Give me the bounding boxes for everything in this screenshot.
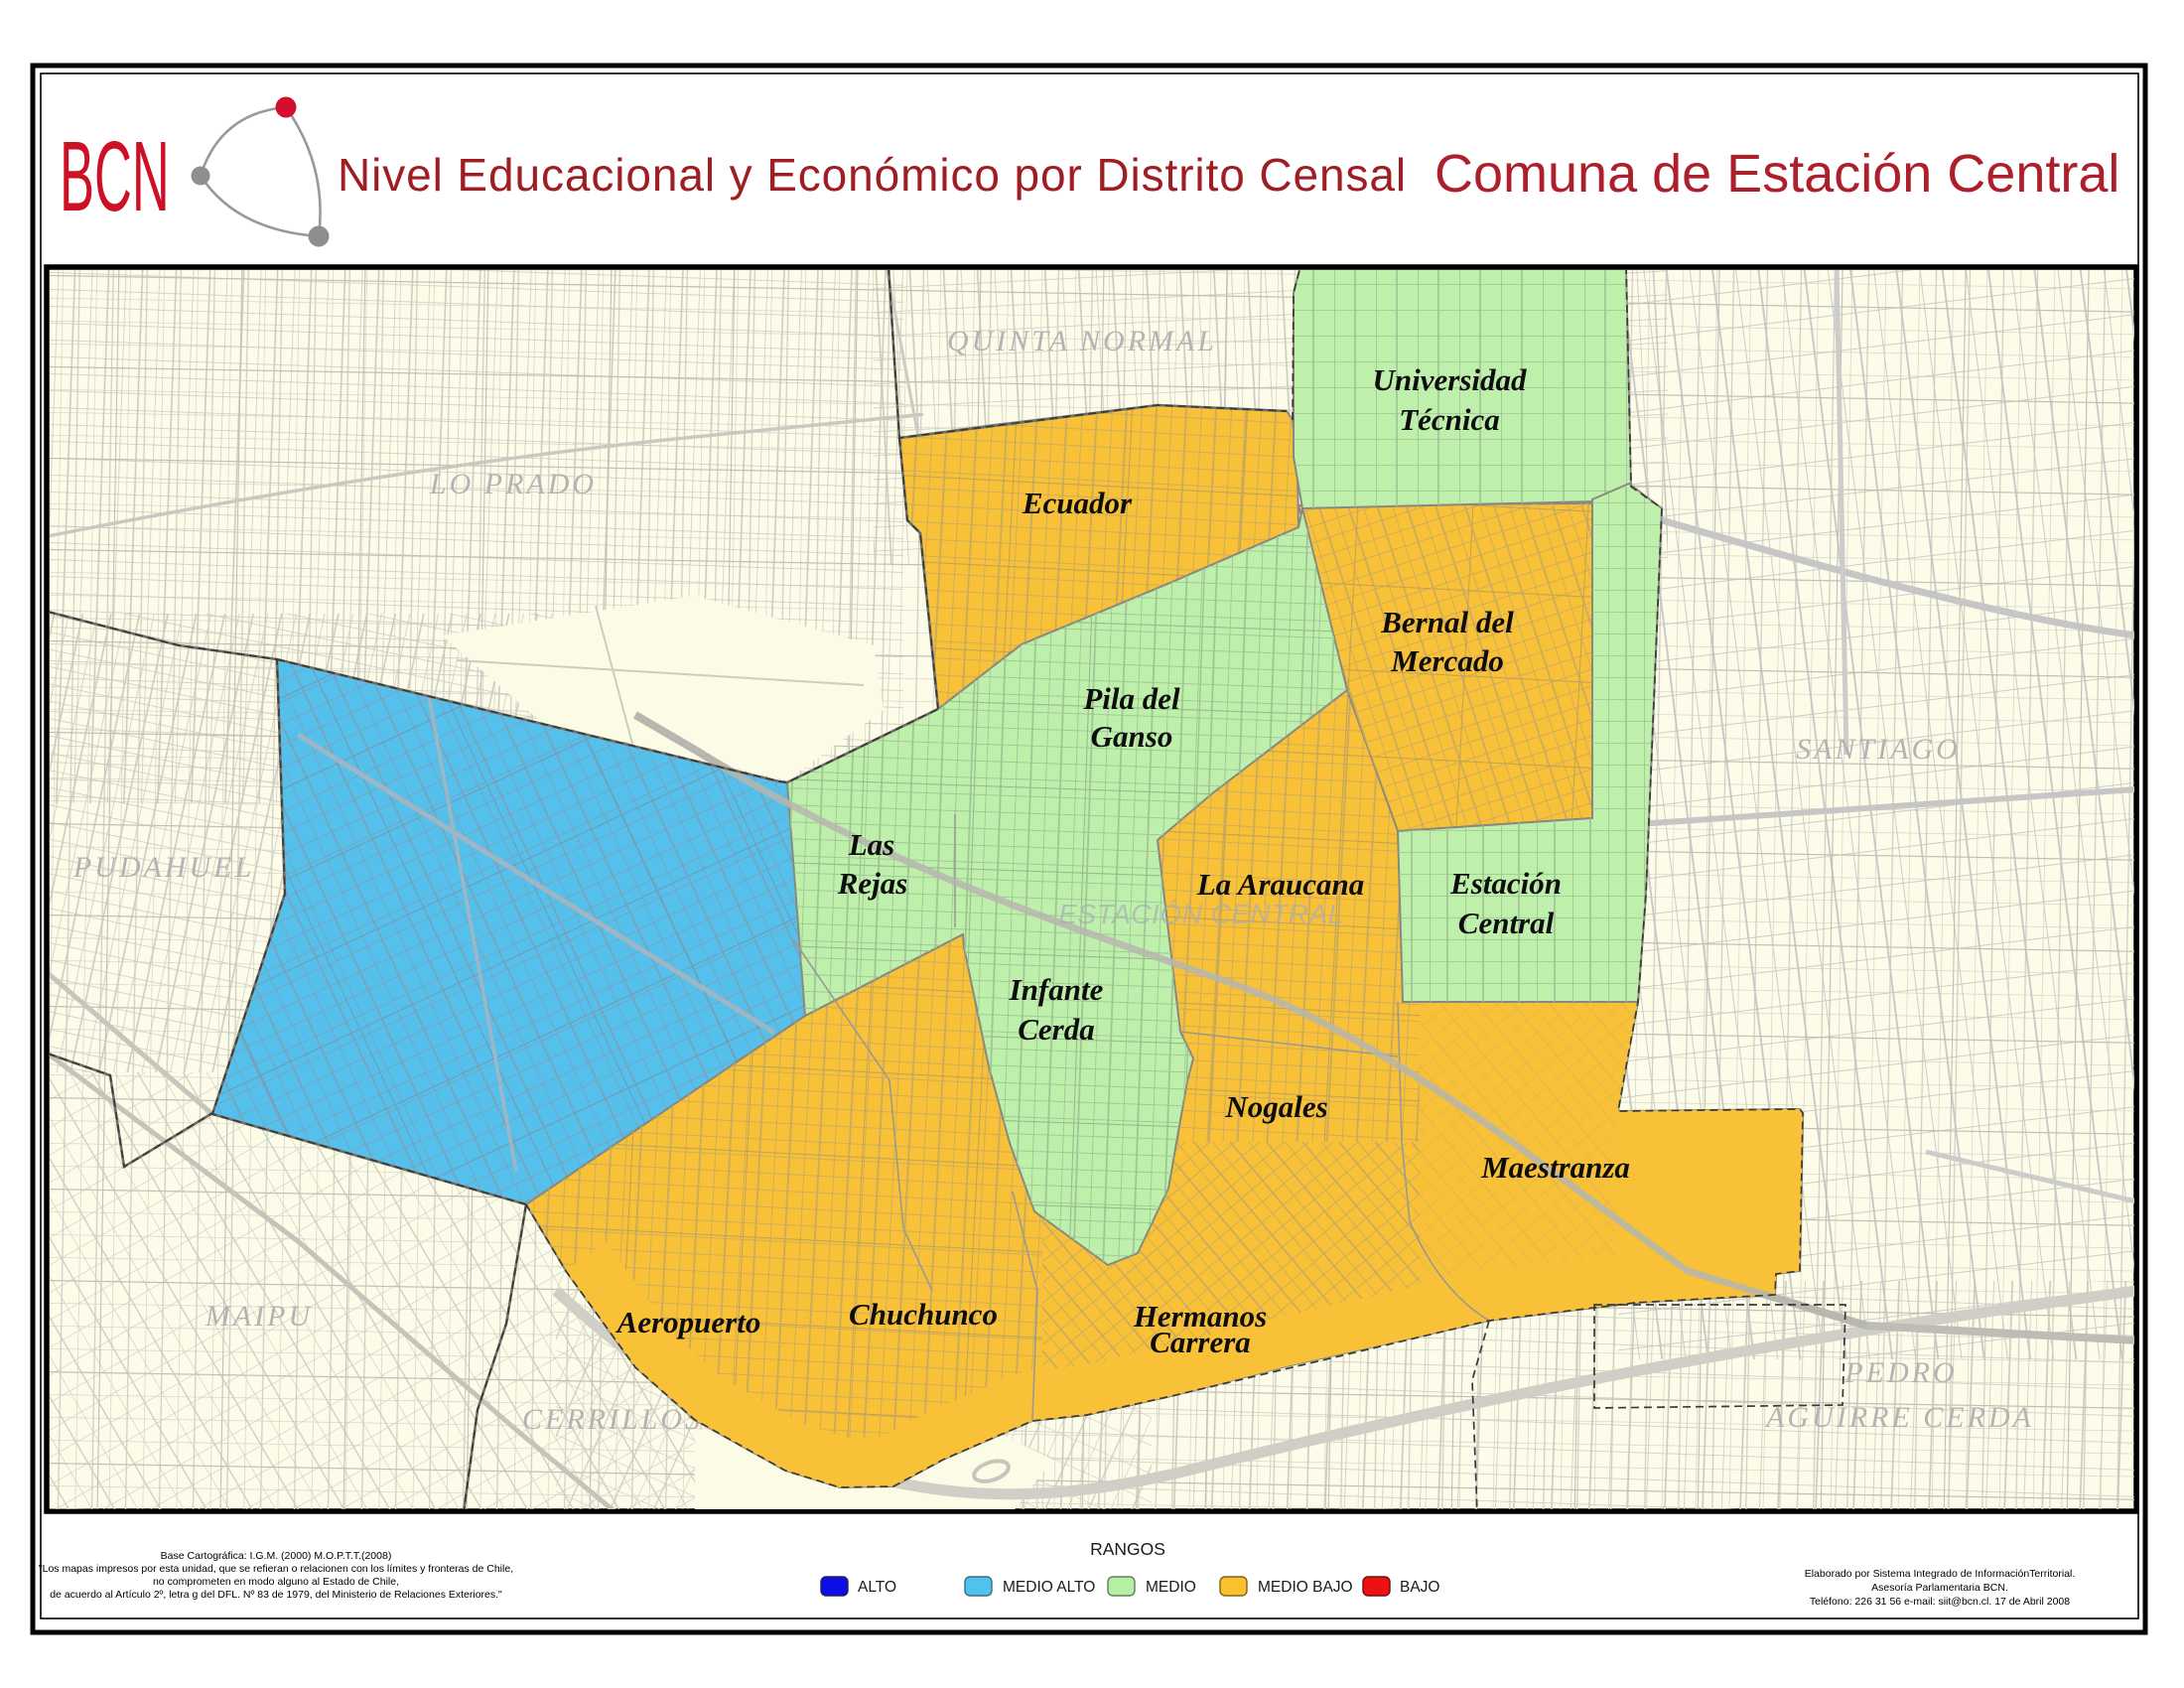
svg-text:LO PRADO: LO PRADO <box>429 468 597 500</box>
svg-text:QUINTA NORMAL: QUINTA NORMAL <box>947 325 1217 357</box>
svg-text:Elaborado por Sistema Integrad: Elaborado por Sistema Integrado de Infor… <box>1805 1568 2076 1580</box>
svg-text:Teléfono: 226 31 56 e-mail: si: Teléfono: 226 31 56 e-mail: siit@bcn.cl.… <box>1810 1596 2070 1608</box>
svg-text:ALTO: ALTO <box>858 1579 896 1596</box>
svg-text:Universidad: Universidad <box>1373 362 1528 397</box>
svg-text:Bernal del: Bernal del <box>1380 605 1514 639</box>
svg-text:Cerda: Cerda <box>1018 1012 1095 1047</box>
svg-text:Ganso: Ganso <box>1091 719 1173 754</box>
svg-text:Asesoría Parlamentaria BCN.: Asesoría Parlamentaria BCN. <box>1871 1582 2008 1594</box>
svg-text:MEDIO: MEDIO <box>1146 1579 1196 1596</box>
svg-text:Rejas: Rejas <box>837 866 908 901</box>
svg-text:Comuna de Estación Central: Comuna de Estación Central <box>1434 144 2119 204</box>
svg-text:Ecuador: Ecuador <box>1022 486 1133 520</box>
svg-text:"Los mapas impresos por esta u: "Los mapas impresos por esta unidad, que… <box>39 1563 513 1575</box>
svg-text:MAIPU: MAIPU <box>205 1300 313 1333</box>
svg-text:Maestranza: Maestranza <box>1480 1150 1630 1185</box>
svg-text:de acuerdo al Artículo 2º, let: de acuerdo al Artículo 2º, letra g del D… <box>50 1589 502 1601</box>
svg-text:BAJO: BAJO <box>1400 1579 1439 1596</box>
svg-text:Nivel Educacional y Económico: Nivel Educacional y Económico por Distri… <box>338 149 1407 201</box>
svg-text:SANTIAGO: SANTIAGO <box>1796 733 1961 766</box>
svg-text:no comprometen en modo alguno: no comprometen en modo alguno al Estado … <box>153 1576 399 1588</box>
svg-text:La Araucana: La Araucana <box>1196 867 1365 902</box>
svg-text:RANGOS: RANGOS <box>1090 1539 1165 1559</box>
svg-text:Base Cartográfica: I.G.M. (200: Base Cartográfica: I.G.M. (2000) M.O.P.T… <box>161 1550 392 1562</box>
svg-text:Nogales: Nogales <box>1224 1089 1327 1124</box>
svg-text:Las: Las <box>848 827 895 862</box>
svg-text:Carrera: Carrera <box>1150 1325 1251 1359</box>
svg-text:Infante: Infante <box>1009 972 1104 1007</box>
svg-text:ESTACIÓN CENTRAL: ESTACIÓN CENTRAL <box>1058 899 1344 929</box>
svg-text:Técnica: Técnica <box>1399 402 1500 437</box>
svg-text:MEDIO ALTO: MEDIO ALTO <box>1003 1579 1095 1596</box>
svg-text:Estación: Estación <box>1449 866 1562 901</box>
svg-text:PEDRO: PEDRO <box>1843 1356 1957 1389</box>
svg-text:Mercado: Mercado <box>1390 643 1504 678</box>
svg-text:PUDAHUEL: PUDAHUEL <box>72 851 254 884</box>
svg-text:Central: Central <box>1458 906 1555 940</box>
svg-text:Pila del: Pila del <box>1082 681 1180 716</box>
svg-text:Chuchunco: Chuchunco <box>849 1297 998 1332</box>
svg-text:MEDIO BAJO: MEDIO BAJO <box>1258 1579 1353 1596</box>
svg-text:BCN: BCN <box>60 121 170 231</box>
svg-text:Aeropuerto: Aeropuerto <box>615 1305 761 1339</box>
svg-text:CERRILLOS: CERRILLOS <box>522 1403 703 1436</box>
